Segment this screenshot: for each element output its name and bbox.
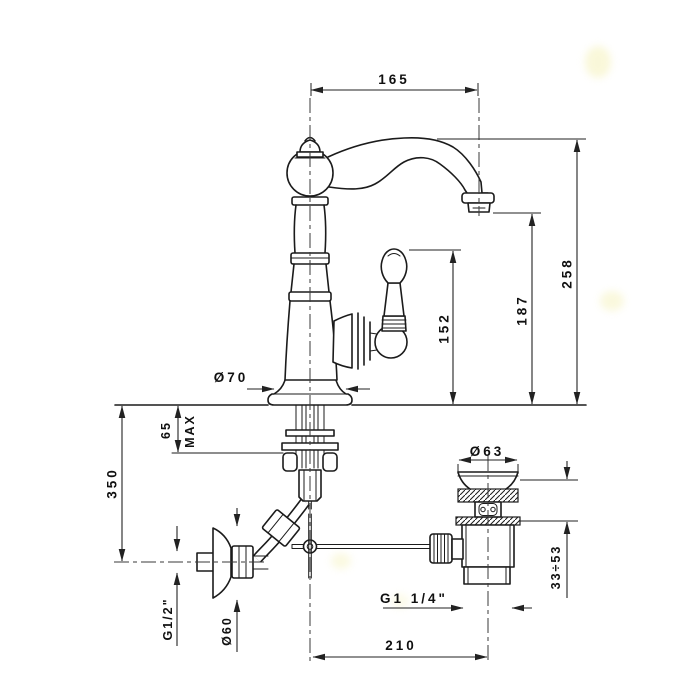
popup-waste-assembly [430,472,520,584]
dim-waste-thread-label: G1 1/4" [380,591,448,606]
popup-rod-assembly [292,470,431,578]
dim-deck-thickness-label: 65 [159,421,173,439]
dimension-lines [122,83,586,657]
dim-supply-thread-label: G1/2" [161,597,175,640]
dim-deck-max-label: MAX [183,414,197,448]
dim-spout-reach-label: 165 [378,72,410,87]
faucet-spout [328,138,494,212]
dim-total-height-label: 258 [560,257,575,289]
dim-base-diameter-label: Ø70 [214,370,249,385]
handle-stem [384,283,404,316]
dim-handle-height-label: 152 [437,312,452,344]
dim-clamp-range-label: 33÷53 [549,545,563,590]
dim-spout-height-label: 187 [515,294,530,326]
dim-centre-distance-label: 210 [385,638,417,653]
faucet-dimension-drawing: 165 258 187 152 Ø70 65 MAX 350 G1/2" Ø60… [0,0,700,700]
dim-escutcheon-diameter-label: Ø60 [220,616,234,646]
waste-tailpiece [464,567,510,584]
faucet-handle [333,249,407,369]
supply-hose [257,502,305,559]
technical-drawing-canvas: 165 258 187 152 Ø70 65 MAX 350 G1/2" Ø60… [0,0,700,700]
spout-outlet-bead [462,193,494,203]
wall-escutcheon [213,528,231,598]
wall-supply-elbow [197,528,268,598]
dim-supply-drop-label: 350 [105,467,120,499]
dim-waste-flange-label: Ø63 [470,444,505,459]
handle-grip [381,249,407,283]
